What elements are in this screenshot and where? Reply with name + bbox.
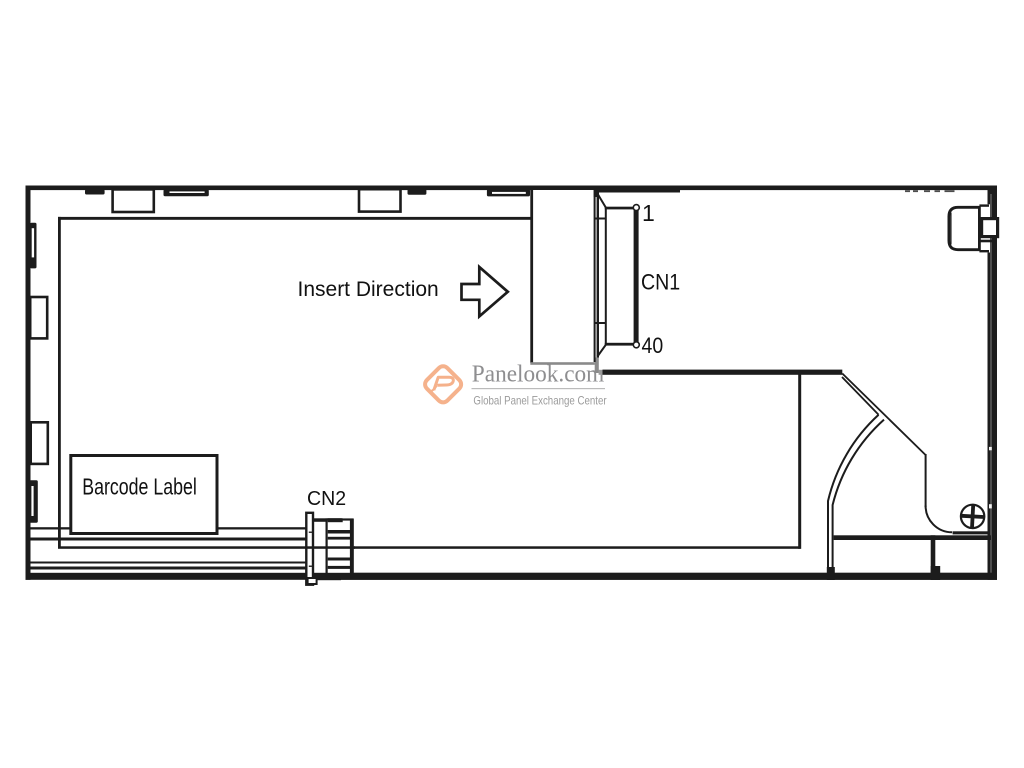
svg-text:Global Panel Exchange Center: Global Panel Exchange Center — [473, 394, 606, 408]
svg-text:Barcode Label: Barcode Label — [82, 473, 197, 499]
svg-text:40: 40 — [642, 333, 664, 358]
svg-text:1: 1 — [642, 200, 655, 226]
svg-text:CN1: CN1 — [641, 269, 680, 294]
svg-text:CN2: CN2 — [307, 487, 346, 510]
svg-text:Insert Direction: Insert Direction — [298, 278, 439, 301]
